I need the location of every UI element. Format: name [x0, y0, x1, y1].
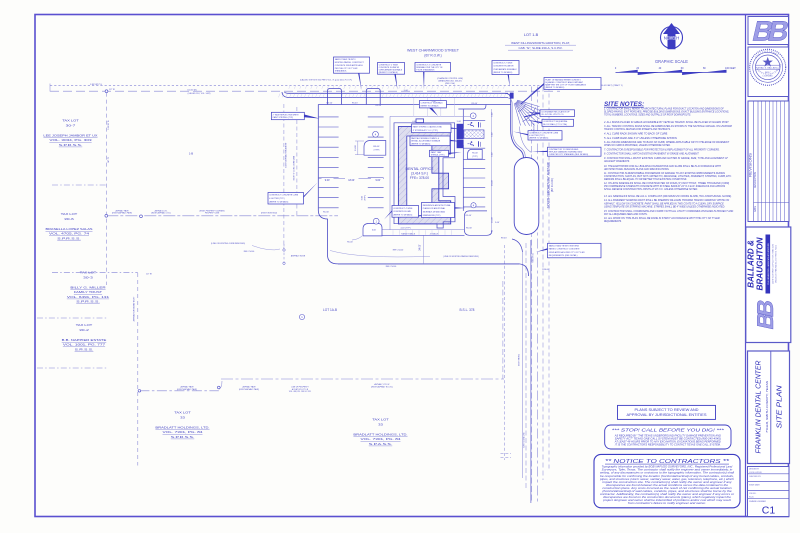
svg-text:EXIST 6" CONC CURB LINE: EXIST 6" CONC CURB LINE [294, 155, 296, 180]
svg-text:(REFER TO DETAILS): (REFER TO DETAILS) [393, 214, 412, 217]
svg-text:R5.00': R5.00' [466, 215, 473, 217]
svg-text:CHECKED BY:: CHECKED BY: [749, 476, 762, 478]
svg-text:PAINT STRIPING (TYP.): PAINT STRIPING (TYP.) [273, 116, 294, 119]
svg-text:VOL. 6491, PG. 131: VOL. 6491, PG. 131 [67, 295, 110, 299]
svg-text:5.00': 5.00' [495, 222, 500, 224]
svg-text:R5.00': R5.00' [327, 103, 334, 105]
svg-text:BRADLATT HOLDINGS, LTD.: BRADLATT HOLDINGS, LTD. [353, 433, 407, 437]
svg-text:DENTAL OFFICE: DENTAL OFFICE [406, 167, 435, 171]
svg-text:(3,414 S.F.): (3,414 S.F.) [411, 171, 428, 175]
svg-text:LOOS & WOOD: LOOS & WOOD [749, 472, 763, 474]
svg-text:(CHAINLINK CONTROL LINE): (CHAINLINK CONTROL LINE) [437, 77, 463, 80]
svg-text:13.00': 13.00' [355, 145, 357, 151]
svg-text:4. ALL CURB RADII SHOWN ARE: 4. ALL CURB RADII SHOWN ARE TO BACK OF C… [604, 132, 668, 135]
svg-text:13. ALL SIDEWALKS SHALL BE A: 13. ALL SIDEWALKS SHALL BE A.D.A. COMPLI… [604, 195, 732, 198]
svg-text:REFER TO DETAILS: REFER TO DETAILS [421, 104, 439, 107]
svg-text:86917: 86917 [765, 72, 771, 74]
svg-text:30-2: 30-2 [79, 328, 89, 332]
svg-text:DRAWING NUMBER: DRAWING NUMBER [749, 500, 767, 503]
svg-text:WEST KILLINGSWORTH ADDITION, P: WEST KILLINGSWORTH ADDITION, PLAT, [511, 41, 570, 45]
svg-text:TOTAL NUMBERS, LOCATIONS, SIZE: TOTAL NUMBERS, LOCATIONS, SIZES AND OUTF… [604, 114, 691, 117]
svg-text:30-7: 30-7 [66, 123, 76, 127]
svg-text:EXISTING PAVING. CONSTRUCT: EXISTING PAVING. CONSTRUCT [335, 61, 365, 64]
svg-text:SOUTH BROADWAY AVENUE: SOUTH BROADWAY AVENUE [546, 161, 550, 208]
svg-text:DRIVE APPROACH PER CITY OF TYL: DRIVE APPROACH PER CITY OF TYLER [549, 251, 585, 254]
svg-text:impact the construction site.: impact the construction site. The contra… [602, 481, 732, 484]
svg-text:PAINT ACCESSIBLE SYMBOL &: PAINT ACCESSIBLE SYMBOL & [411, 137, 440, 140]
svg-text:CONCRETE FLUME W/: CONCRETE FLUME W/ [493, 66, 514, 68]
svg-text:100 FEET: 100 FEET [725, 67, 736, 70]
svg-text:LOT 1-B: LOT 1-B [524, 33, 539, 37]
svg-text:FFE= 378.00: FFE= 378.00 [410, 176, 429, 180]
svg-text:WHEN NO CURB IS PROPOSED, UNLE: WHEN NO CURB IS PROPOSED, UNLESS OTHERWI… [604, 144, 671, 147]
svg-text:R5.00': R5.00' [466, 228, 473, 230]
svg-text:CURB INLET: CURB INLET [534, 122, 536, 134]
svg-text:SITE PLAN: SITE PLAN [775, 385, 784, 429]
svg-text:(LINE OF EXISTING PAVING REMOV: (LINE OF EXISTING PAVING REMOVED) [443, 255, 479, 258]
svg-text:*** STOP! CALL BEFORE YOU: *** STOP! CALL BEFORE YOU DIG! *** [612, 428, 724, 433]
svg-text:OVER AERATE SIDEWALK: OVER AERATE SIDEWALK [493, 68, 517, 71]
svg-text:(80' R.O.W.): (80' R.O.W.) [550, 178, 554, 192]
svg-text:construction plans. Any costs: construction plans. Any costs incurred a… [602, 487, 732, 490]
svg-text:SAWCUT AND TIE INTO EXISTING: SAWCUT AND TIE INTO EXISTING [549, 244, 580, 247]
svg-text:1/2" IR: 1/2" IR [109, 89, 115, 91]
svg-text:(EXIST IRON ROD): (EXIST IRON ROD) [261, 213, 277, 215]
svg-text:CURB PER CITY STANDARD (REF. D: CURB PER CITY STANDARD (REF. DETAILS) [549, 153, 589, 156]
svg-text:(REFER TO DETAILS): (REFER TO DETAILS) [545, 86, 564, 89]
svg-text:9.00': 9.00' [491, 152, 493, 157]
svg-text:VOL. 4705, PG. 74: VOL. 4705, PG. 74 [49, 232, 90, 236]
svg-text:TAX LOT: TAX LOT [62, 119, 79, 123]
svg-text:9.00': 9.00' [491, 132, 493, 137]
svg-text:(REFER TO DETAILS): (REFER TO DETAILS) [411, 142, 430, 145]
svg-text:24.00': 24.00' [420, 244, 422, 251]
svg-text:18.00': 18.00' [491, 180, 493, 186]
svg-text:5.00': 5.00' [457, 121, 462, 123]
svg-text:33: 33 [378, 422, 383, 426]
svg-text:147.73': 147.73' [108, 156, 110, 163]
svg-text:9.00': 9.00' [325, 179, 331, 182]
svg-text:(TYP): (TYP) [472, 156, 478, 158]
svg-text:(TYP): (TYP) [365, 195, 367, 201]
svg-text:30-6: 30-6 [64, 217, 74, 221]
svg-text:CONSTRUCT 4' WIDE: CONSTRUCT 4' WIDE [393, 208, 413, 210]
svg-text:R10.00': R10.00' [542, 269, 550, 271]
svg-text:SQUARES. CONSTRUCT ADA COMPLI: SQUARES. CONSTRUCT ADA COMPLIANT [545, 81, 584, 84]
svg-text:EXIST PAVING: EXIST PAVING [518, 353, 521, 366]
svg-text:R5.00': R5.00' [352, 103, 359, 105]
svg-text:(EXIST ASPHALT PAVE): (EXIST ASPHALT PAVE) [239, 388, 259, 391]
svg-text:REPAIRS SHALL BE EQUAL TO OR B: REPAIRS SHALL BE EQUAL TO OR BETTER THAN… [604, 178, 687, 181]
svg-text:BRASELLA LOPEZ SALAS: BRASELLA LOPEZ SALAS [46, 227, 93, 231]
svg-text:(CALLED 150', VOL. 1442): (CALLED 150', VOL. 1442) [188, 92, 211, 95]
svg-text:SAWCUT AND TIE INTO: SAWCUT AND TIE INTO [335, 58, 356, 61]
svg-text:TAX LOT: TAX LOT [372, 418, 389, 422]
svg-text:(LINE OF EXISTING CURB REMOVED: (LINE OF EXISTING CURB REMOVED) [211, 243, 245, 245]
svg-text:R5.00': R5.00' [347, 242, 353, 244]
svg-text:6.00': 6.00' [372, 230, 377, 232]
svg-text:ARCHITECTURAL BUILDING PLANS A: ARCHITECTURAL BUILDING PLANS AND SPECIFI… [603, 168, 670, 171]
svg-text:VOL. 308, PG. 103 S.C.P.R.: VOL. 308, PG. 103 S.C.P.R. [289, 391, 312, 393]
svg-text:PLANS SUBJECT TO REVIEW AND: PLANS SUBJECT TO REVIEW AND [635, 408, 699, 412]
svg-text:R9.00': R9.00' [501, 238, 508, 240]
svg-text:TAX LOT: TAX LOT [174, 411, 191, 415]
svg-text:TYLER STANDARDS: TYLER STANDARDS [416, 68, 435, 71]
svg-text:33: 33 [180, 415, 185, 419]
svg-text:** NOTICE TO CONTRACTORS: ** NOTICE TO CONTRACTORS ** [605, 459, 730, 465]
svg-text:30-3: 30-3 [83, 275, 93, 279]
svg-text:TYLER, SMITH COUNTY, TEXAS: TYLER, SMITH COUNTY, TEXAS [765, 381, 769, 433]
svg-text:8. CONTRACTOR SHALL MATCH E: 8. CONTRACTOR SHALL MATCH EXISTING PAVEM… [604, 153, 700, 156]
svg-text:R5.00': R5.00' [323, 212, 330, 214]
svg-text:Surveyors, Tyler, Texas. The: Surveyors, Tyler, Texas. The contractor … [602, 469, 734, 472]
svg-text:(CALLED S 89°58' E 350 FEET,: (CALLED S 89°58' E 350 FEET, VOL. 71 (p.… [300, 78, 352, 81]
svg-text:5. ALL CURB RADII ARE 3'-0": 5. ALL CURB RADII ARE 3'-0" UNLESS OTHER… [604, 137, 678, 140]
svg-text:S.P.R.S.S.: S.P.R.S.S. [57, 236, 81, 240]
svg-text:GRAPHIC SCALE: GRAPHIC SCALE [655, 59, 688, 64]
svg-text:EXIST ASPHALT PAVEMENT: EXIST ASPHALT PAVEMENT [285, 142, 288, 168]
svg-text:CONCRETE DRIVE APPROACH: CONCRETE DRIVE APPROACH [335, 64, 364, 67]
svg-text:CONSTRUCT SEQUENTIAL: CONSTRUCT SEQUENTIAL [543, 120, 567, 123]
svg-text:CONCRETE FLUME: CONCRETE FLUME [393, 211, 411, 213]
svg-text:PLANS FOR ADDITIONAL: PLANS FOR ADDITIONAL [423, 207, 445, 210]
svg-text:be responsible for confirming: be responsible for confirming the locati… [600, 475, 735, 478]
svg-text:7 AISLE STALLS: 7 AISLE STALLS [401, 233, 416, 236]
svg-text:4" STRIPES AT 2' O.C. (TYP.): 4" STRIPES AT 2' O.C. (TYP.) [413, 129, 438, 132]
svg-text:VOL. 3034, PG. 303: VOL. 3034, PG. 303 [49, 138, 92, 142]
svg-text:DESCRIPTION: DESCRIPTION [754, 172, 757, 189]
svg-text:150.00' (R): 150.00' (R) [187, 90, 197, 92]
svg-text:PAVING. CONSTRUCT CONCRETE: PAVING. CONSTRUCT CONCRETE [549, 248, 581, 251]
svg-text:SAFETY ACT" TEXAS ONE CALL SYS: SAFETY ACT" TEXAS ONE CALL SYSTEM MUST B… [615, 438, 721, 441]
svg-text:BILLY G. MILLER: BILLY G. MILLER [70, 286, 105, 290]
svg-text:LOT 1A-B: LOT 1A-B [323, 308, 337, 312]
svg-text:REF. 214.00: REF. 214.00 [244, 251, 254, 253]
svg-text:PAY ALL REQUIRED FEES AND COST: PAY ALL REQUIRED FEES AND COSTS. [604, 213, 648, 216]
svg-text:9.00': 9.00' [375, 179, 381, 182]
svg-text:9.00': 9.00' [362, 195, 364, 200]
svg-text:VOL. 7301, PG. 84: VOL. 7301, PG. 84 [361, 437, 402, 441]
svg-text:B.S.L. 378: B.S.L. 378 [460, 308, 475, 312]
svg-text:9.00': 9.00' [491, 112, 493, 117]
svg-text:SHALL RECEIVE CONSTRUCTION JOI: SHALL RECEIVE CONSTRUCTION JOINTS AT 20'… [604, 188, 698, 191]
svg-text:S.P.R.S.S.: S.P.R.S.S. [171, 435, 195, 439]
svg-text:REF. 214.00: REF. 214.00 [386, 266, 396, 268]
svg-text:(EXIST ASPHALT PAVE): (EXIST ASPHALT PAVE) [112, 212, 132, 215]
svg-text:B.B. NAPPIER ESTATE: B.B. NAPPIER ESTATE [62, 338, 107, 342]
svg-text:ASPHALT EDGE: ASPHALT EDGE [291, 255, 306, 258]
svg-text:PROPERTY LINE: PROPERTY LINE [205, 213, 220, 215]
svg-text:STANDARDS.: STANDARDS. [335, 70, 348, 73]
svg-text:RAMP PER THE CITY OF TYLER STA: RAMP PER THE CITY OF TYLER STANDARDS [545, 84, 586, 87]
svg-text:TAX LOT: TAX LOT [76, 323, 93, 327]
svg-text:(REFER TO DETAILS): (REFER TO DETAILS) [493, 71, 512, 74]
svg-text:R5.00': R5.00' [472, 153, 478, 155]
svg-text:24.00': 24.00' [491, 217, 493, 223]
svg-text:from contractor's failure to n: from contractor's failure to notify engi… [628, 502, 707, 505]
svg-text:SIDEWALK DETAILS AND: SIDEWALK DETAILS AND [423, 210, 446, 213]
svg-text:(60' R.O.W.): (60' R.O.W.) [424, 53, 441, 57]
svg-text:(REF. 13-4): (REF. 13-4) [445, 82, 455, 85]
svg-text:R5.00': R5.00' [376, 105, 383, 107]
svg-text:S 00°02' W: S 00°02' W [108, 120, 110, 130]
svg-text:FRANKLIN DENTAL CENTER: FRANKLIN DENTAL CENTER [754, 360, 763, 454]
svg-text:BLOCK WALL (3' TO 4' TAL): BLOCK WALL (3' TO 4' TAL) [543, 123, 567, 126]
svg-text:(EXIST ASPHALT, LTD.): (EXIST ASPHALT, LTD.) [151, 212, 171, 215]
svg-text:IT IS THE CONTRACTOR'S RESPONS: IT IS THE CONTRACTOR'S RESPONSIBILITY TO… [615, 443, 721, 446]
svg-text:& GUTTER (TYP.): & GUTTER (TYP.) [269, 198, 285, 200]
svg-text:(horizontal/vertical) of said: (horizontal/vertical) of said cables, co… [602, 490, 732, 493]
svg-text:(EXIST ASPHALT W. LTD.): (EXIST ASPHALT W. LTD.) [371, 385, 393, 388]
svg-text:7. CONTRACTOR IS RESPONSIBL: 7. CONTRACTOR IS RESPONSIBLE FOR PROTECT… [604, 149, 720, 152]
svg-text:REQUIREMENTS.: REQUIREMENTS. [604, 220, 622, 223]
svg-text:OIL GUY RE: UTILITY CO.: OIL GUY RE: UTILITY CO. [541, 114, 564, 116]
svg-text:ISSUE DATE:: ISSUE DATE: [749, 483, 761, 486]
svg-text:TRAFFIC CONTROL DEVICES FOR ST: TRAFFIC CONTROL DEVICES FOR STREETS AND … [604, 128, 671, 131]
svg-text:REFERENCE ARCHITECTURAL: REFERENCE ARCHITECTURAL [423, 204, 451, 207]
svg-text:PAINT STRIPED LOADING ZONE,: PAINT STRIPED LOADING ZONE, [413, 125, 443, 128]
svg-text:S 89°58'12" E: S 89°58'12" E [90, 84, 102, 86]
svg-text:4.00' (TYP): 4.00' (TYP) [400, 228, 410, 230]
svg-text:C1: C1 [762, 505, 776, 517]
svg-text:USING TEMPLATE OR STRIPING MAC: USING TEMPLATE OR STRIPING MACHINE. STRI… [604, 205, 725, 208]
svg-text:(MEASURED 350', 350.41'): (MEASURED 350', 350.41') [438, 80, 462, 83]
svg-text:DIMENSIONS (TYP.): DIMENSIONS (TYP.) [423, 215, 441, 217]
svg-text:CIVIL ENGINEERING • LANDSCAPE: CIVIL ENGINEERING • LANDSCAPE ARCHITECTU… [767, 242, 770, 285]
svg-text:5.00': 5.00' [404, 90, 409, 92]
svg-text:FAMILY TRUST: FAMILY TRUST [74, 290, 103, 294]
svg-text:REVISIONS: REVISIONS [748, 153, 753, 177]
svg-text:18.00': 18.00' [348, 179, 355, 182]
svg-text:VOL. 1001, PG. 777: VOL. 1001, PG. 777 [63, 343, 106, 347]
svg-text:PER THE CITY OF TYLER: PER THE CITY OF TYLER [335, 68, 358, 70]
svg-text:R5.00': R5.00' [472, 103, 479, 105]
svg-text:CONSTRUCT 2' WIDE: CONSTRUCT 2' WIDE [493, 63, 513, 65]
svg-text:2. ALL SIGNS PLACED IN AREA: 2. ALL SIGNS PLACED IN AREAS ACCESSIBLE … [603, 121, 729, 124]
svg-text:(EXIST ASPHALT PAVE): (EXIST ASPHALT PAVE) [177, 388, 197, 391]
svg-text:2" WIDE REFLECTIVE WHITE: 2" WIDE REFLECTIVE WHITE [273, 114, 300, 116]
svg-text:Topographic information provid: Topographic information provided by BOB … [602, 466, 734, 469]
svg-text:LEE JOSEPH JAMBOR ET UX: LEE JOSEPH JAMBOR ET UX [43, 134, 97, 138]
svg-text:project. Engineer and owner s: project. Engineer and owner shall be ind… [602, 499, 732, 502]
svg-text:discrepancies are found betwee: discrepancies are found between the actu… [606, 484, 729, 487]
svg-text:5.00': 5.00' [432, 101, 437, 103]
svg-text:AT LEAST 48 HOURS PRIOR TO ANY: AT LEAST 48 HOURS PRIOR TO ANY EXCAVATIO… [614, 440, 721, 443]
svg-text:NORTH: NORTH [664, 35, 680, 40]
svg-text:TBM 378.21: TBM 378.21 [533, 253, 535, 263]
svg-text:APPROVAL BY JURISDICTIONAL ENT: APPROVAL BY JURISDICTIONAL ENTITIES [627, 413, 708, 417]
svg-text:PLANT 18' MAX AND REPAIR CURB: PLANT 18' MAX AND REPAIR CURB IN 5' [545, 78, 581, 81]
svg-text:REF. 214.00: REF. 214.00 [393, 250, 403, 252]
svg-text:1-B: 1-B [189, 152, 193, 156]
svg-text:REQUIREMENTS. (REF. DETAIL): REQUIREMENTS. (REF. DETAIL) [549, 254, 578, 257]
svg-text:R5.00': R5.00' [373, 146, 380, 148]
svg-text:ASPHALT DRIVEWAY EXIST: ASPHALT DRIVEWAY EXIST [133, 296, 136, 322]
svg-text:BRAD S. BALLARD: BRAD S. BALLARD [758, 66, 779, 69]
svg-text:WEST CHARNWOOD STREET: WEST CHARNWOOD STREET [407, 47, 460, 52]
svg-text:COORDINATE RELOCATION OF: COORDINATE RELOCATION OF [541, 111, 570, 114]
svg-text:pipes, and structures (storm s: pipes, and structures (storm sewer, sani… [599, 478, 735, 481]
svg-text:(REFER TO DETAILS): (REFER TO DETAILS) [529, 137, 548, 140]
svg-text:ADJACENT PAVEMENTS.: ADJACENT PAVEMENTS. [603, 160, 630, 163]
svg-text:VOL. 7301, PG. 84: VOL. 7301, PG. 84 [163, 430, 204, 434]
svg-text:4 STALLS: 4 STALLS [430, 233, 439, 236]
svg-text:writing, of any discrepancies: writing, of any discrepancies or omissio… [600, 472, 735, 475]
svg-text:AS REQUIRED BY "THE TEXAS UNDE: AS REQUIRED BY "THE TEXAS UNDERGROUND FA… [614, 435, 721, 438]
svg-text:1/2" IR: 1/2" IR [146, 274, 152, 276]
svg-text:CONSTRUCT CONCRETE CURB: CONSTRUCT CONCRETE CURB [269, 195, 299, 197]
svg-text:BRADLATT HOLDINGS, LTD.: BRADLATT HOLDINGS, LTD. [155, 426, 209, 430]
svg-text:91-05: 91-05 [749, 496, 754, 498]
svg-text:JOB NO:: JOB NO: [749, 493, 757, 495]
svg-text:contractor. Additionally, the: contractor. Additionally, the contractor… [600, 493, 734, 496]
svg-text:(REFER TO DETAILS): (REFER TO DETAILS) [269, 200, 288, 203]
svg-text:INSTALL ACCESSIBLE SIGNAGE: INSTALL ACCESSIBLE SIGNAGE [411, 140, 441, 143]
svg-text:S.P.A.S.S.: S.P.A.S.S. [369, 442, 393, 446]
svg-text:(TYP): (TYP) [374, 150, 380, 152]
svg-text:TAX LOT: TAX LOT [80, 271, 97, 275]
svg-text:DATE: DATE [754, 205, 757, 212]
svg-text:S.R.S.S.: S.R.S.S. [75, 347, 94, 351]
svg-text:STENCIL (TYP.): STENCIL (TYP.) [431, 154, 445, 156]
svg-text:BALLARD &: BALLARD & [747, 240, 756, 288]
svg-text:EXIST CURB LINE: EXIST CURB LINE [524, 432, 526, 448]
svg-text:TAX LOT: TAX LOT [61, 212, 78, 216]
svg-text:S.P.R.S.S.: S.P.R.S.S. [76, 299, 100, 303]
svg-text:DESIGN BY:: DESIGN BY: [749, 469, 760, 471]
svg-text:BRAUGHTON: BRAUGHTON [756, 236, 765, 290]
svg-text:(REFER TO DETAILS): (REFER TO DETAILS) [379, 71, 398, 74]
svg-text:CAB. "E", SLIDE 230-A, S.C.P.R: CAB. "E", SLIDE 230-A, S.C.P.R. [518, 46, 562, 50]
svg-text:S.P.R.S.S.: S.P.R.S.S. [59, 143, 83, 147]
svg-text:discrepancies are found on the: discrepancies are found on the construct… [603, 496, 732, 499]
